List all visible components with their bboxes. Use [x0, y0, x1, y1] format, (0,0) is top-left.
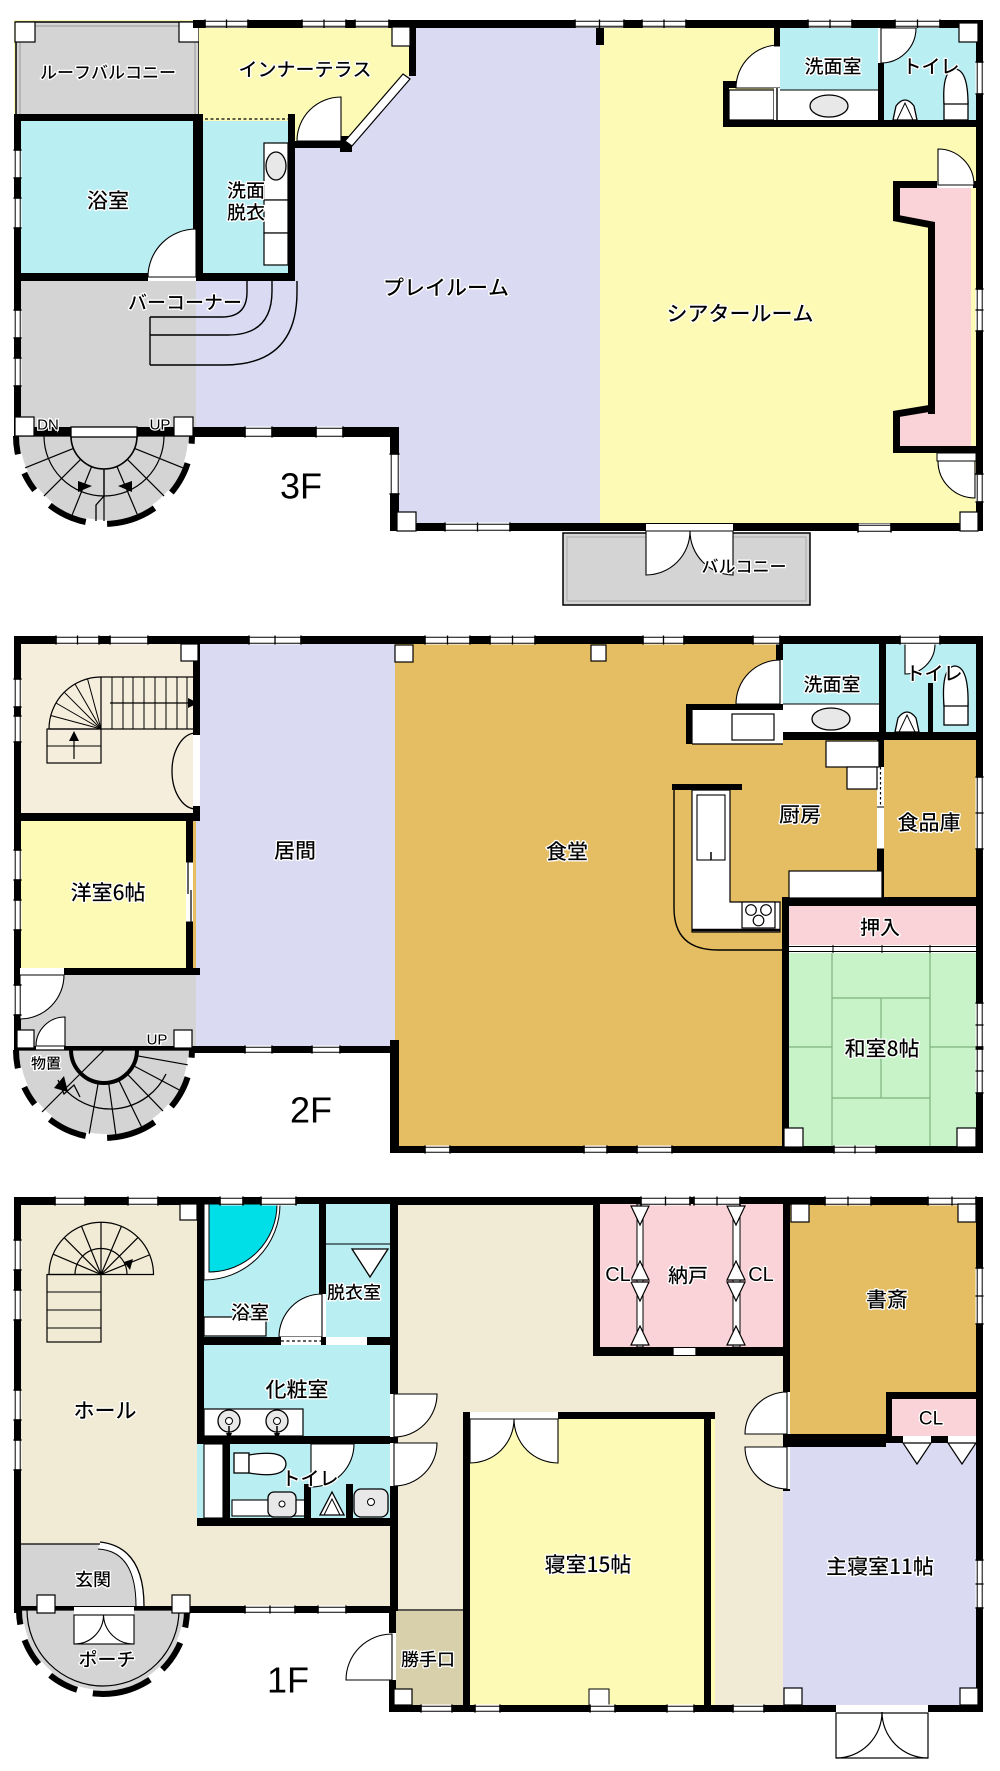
- svg-text:CL: CL: [748, 1264, 774, 1286]
- svg-text:UP: UP: [150, 417, 171, 434]
- svg-text:2F: 2F: [290, 1090, 332, 1131]
- svg-text:CL: CL: [605, 1264, 631, 1286]
- svg-text:UP: UP: [147, 1032, 168, 1049]
- svg-text:1F: 1F: [267, 1660, 309, 1701]
- svg-text:DN: DN: [37, 417, 59, 434]
- svg-text:3F: 3F: [280, 466, 322, 507]
- svg-text:CL: CL: [919, 1409, 943, 1430]
